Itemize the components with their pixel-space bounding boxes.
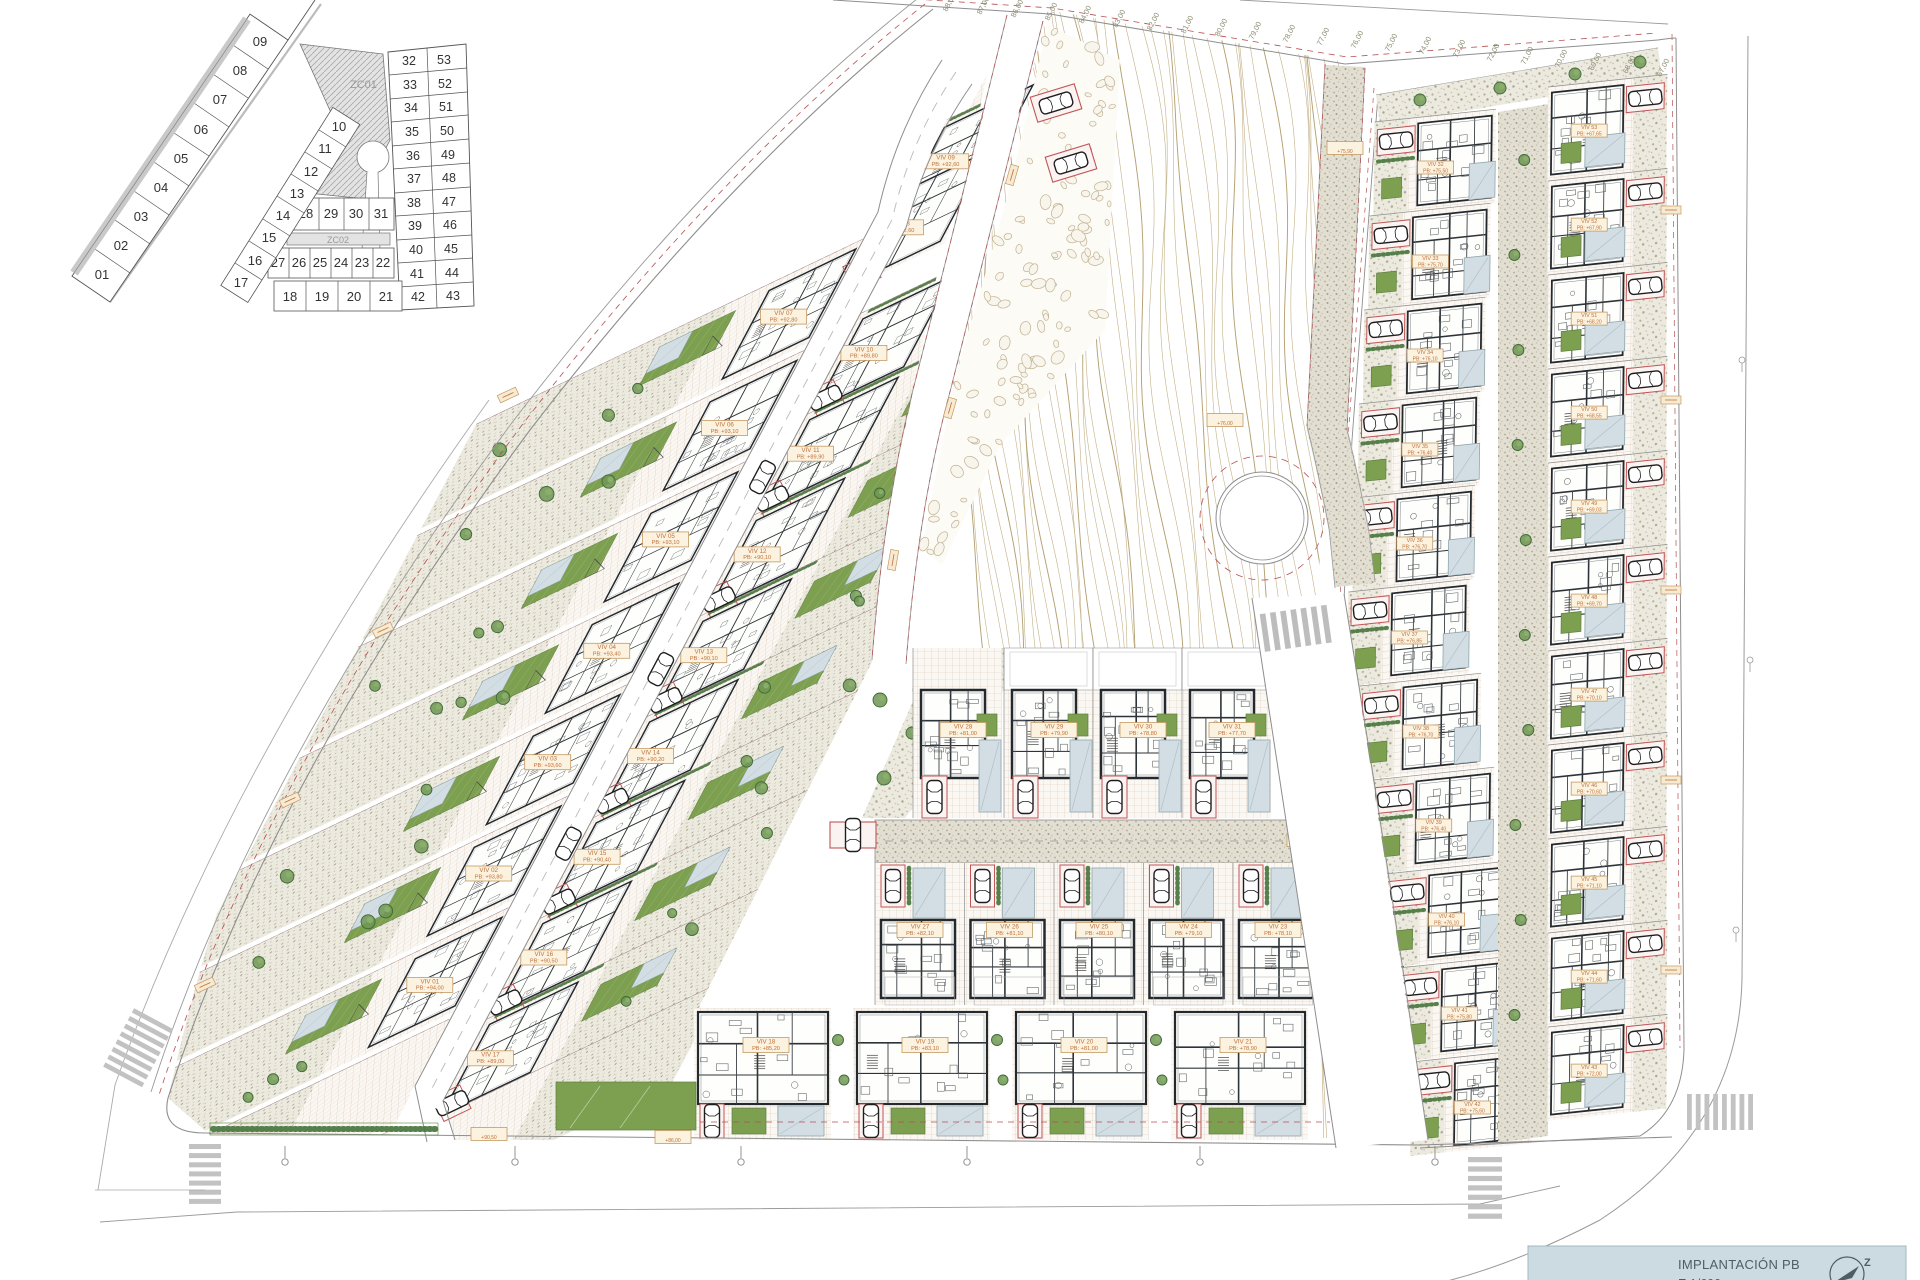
svg-text:PB: +72,00: PB: +72,00: [1577, 1071, 1602, 1077]
svg-text:02: 02: [114, 238, 128, 253]
svg-text:VIV 35: VIV 35: [1412, 444, 1428, 450]
svg-text:Z: Z: [1864, 1257, 1871, 1269]
svg-text:26: 26: [292, 255, 306, 270]
svg-text:VIV 27: VIV 27: [911, 923, 930, 930]
svg-text:PB: +82,10: PB: +82,10: [906, 931, 934, 937]
svg-text:VIV 45: VIV 45: [1581, 877, 1597, 883]
svg-text:PB: +68,55: PB: +68,55: [1577, 413, 1602, 419]
svg-text:PB: +93,10: PB: +93,10: [711, 429, 739, 435]
svg-text:PB: +89,00: PB: +89,00: [476, 1059, 504, 1065]
svg-text:PB: +68,20: PB: +68,20: [1577, 319, 1602, 325]
svg-text:PB: +85,20: PB: +85,20: [752, 1046, 780, 1052]
svg-text:PB: +75,80: PB: +75,80: [1447, 1014, 1472, 1020]
svg-text:VIV 53: VIV 53: [1581, 125, 1597, 131]
svg-text:VIV 50: VIV 50: [1581, 407, 1597, 413]
svg-text:VIV 13: VIV 13: [695, 649, 714, 656]
svg-text:VIV 39: VIV 39: [1426, 820, 1442, 826]
svg-text:10: 10: [332, 119, 346, 134]
svg-text:49: 49: [441, 148, 455, 162]
svg-text:VIV 47: VIV 47: [1581, 689, 1597, 695]
svg-text:43: 43: [446, 289, 460, 303]
svg-text:PB: +80,10: PB: +80,10: [1085, 931, 1113, 937]
svg-text:PB: +81,10: PB: +81,10: [996, 931, 1024, 937]
svg-text:15: 15: [262, 230, 276, 245]
svg-text:VIV 42: VIV 42: [1464, 1102, 1480, 1108]
svg-text:+90,50: +90,50: [481, 1135, 497, 1141]
svg-text:21: 21: [379, 289, 393, 304]
svg-text:19: 19: [315, 289, 329, 304]
svg-text:VIV 18: VIV 18: [757, 1038, 776, 1045]
svg-text:PB: +93,10: PB: +93,10: [652, 540, 680, 546]
svg-text:PB: +69,03: PB: +69,03: [1577, 507, 1602, 513]
svg-text:VIV 19: VIV 19: [916, 1038, 935, 1045]
svg-text:50: 50: [440, 124, 454, 138]
svg-text:VIV 34: VIV 34: [1417, 350, 1433, 356]
svg-text:51: 51: [439, 100, 453, 114]
svg-text:PB: +92,60: PB: +92,60: [932, 162, 960, 168]
svg-text:34: 34: [404, 101, 418, 115]
svg-text:PB: +78,80: PB: +78,80: [1129, 731, 1157, 737]
svg-text:40: 40: [409, 243, 423, 257]
svg-text:PB: +93,40: PB: +93,40: [593, 652, 621, 658]
svg-text:PB: +77,70: PB: +77,70: [1218, 731, 1246, 737]
svg-text:13: 13: [290, 186, 304, 201]
svg-text:VIV 28: VIV 28: [954, 723, 973, 730]
svg-text:12: 12: [304, 164, 318, 179]
svg-text:05: 05: [174, 151, 188, 166]
svg-text:PB: +93,80: PB: +93,80: [475, 874, 503, 880]
svg-text:PB: +76,10: PB: +76,10: [1413, 356, 1438, 362]
svg-text:16: 16: [248, 253, 262, 268]
svg-text:32: 32: [402, 54, 416, 68]
svg-text:+75,90: +75,90: [1337, 149, 1353, 155]
svg-text:IMPLANTACIÓN PB: IMPLANTACIÓN PB: [1678, 1257, 1800, 1272]
svg-text:VIV 03: VIV 03: [538, 756, 557, 763]
svg-text:VIV 15: VIV 15: [588, 850, 607, 857]
svg-text:01: 01: [95, 267, 109, 282]
svg-text:04: 04: [154, 180, 168, 195]
svg-text:PB: +76,10: PB: +76,10: [1434, 920, 1459, 926]
svg-text:44: 44: [445, 266, 459, 280]
svg-text:22: 22: [376, 255, 390, 270]
svg-text:VIV 52: VIV 52: [1581, 219, 1597, 225]
svg-text:36: 36: [406, 149, 420, 163]
svg-text:39: 39: [408, 219, 422, 233]
svg-text:23: 23: [355, 255, 369, 270]
svg-text:VIV 51: VIV 51: [1581, 313, 1597, 319]
svg-text:VIV 14: VIV 14: [641, 749, 660, 756]
svg-text:PB: +67,65: PB: +67,65: [1577, 131, 1602, 137]
svg-text:PB: +90,40: PB: +90,40: [583, 858, 611, 864]
svg-text:VIV 29: VIV 29: [1045, 723, 1064, 730]
svg-text:VIV 38: VIV 38: [1413, 726, 1429, 732]
svg-text:VIV 25: VIV 25: [1090, 923, 1109, 930]
svg-text:PB: +78,90: PB: +78,90: [1229, 1046, 1257, 1052]
svg-text:VIV 43: VIV 43: [1581, 1065, 1597, 1071]
svg-text:PB: +69,70: PB: +69,70: [1577, 601, 1602, 607]
svg-text:PB: +78,10: PB: +78,10: [1264, 931, 1292, 937]
svg-text:PB: +76,70: PB: +76,70: [1402, 544, 1427, 550]
svg-text:ZC01: ZC01: [350, 79, 377, 91]
svg-text:20: 20: [347, 289, 361, 304]
svg-text:37: 37: [407, 172, 421, 186]
svg-text:25: 25: [313, 255, 327, 270]
svg-text:PB: +76,70: PB: +76,70: [1408, 732, 1433, 738]
svg-text:24: 24: [334, 255, 348, 270]
svg-text:PB: +81,00: PB: +81,00: [1070, 1046, 1098, 1052]
svg-text:42: 42: [411, 290, 425, 304]
svg-text:03: 03: [134, 209, 148, 224]
svg-text:PB: +75,60: PB: +75,60: [1460, 1108, 1485, 1114]
svg-text:VIV 30: VIV 30: [1134, 723, 1153, 730]
svg-text:PB: +79,10: PB: +79,10: [1175, 931, 1203, 937]
svg-text:PB: +89,80: PB: +89,80: [850, 354, 878, 360]
svg-text:VIV 49: VIV 49: [1581, 501, 1597, 507]
svg-text:PB: +70,60: PB: +70,60: [1577, 789, 1602, 795]
svg-text:VIV 26: VIV 26: [1000, 923, 1019, 930]
svg-text:09: 09: [253, 34, 267, 49]
svg-text:VIV 07: VIV 07: [774, 310, 793, 317]
svg-text:VIV 21: VIV 21: [1234, 1038, 1253, 1045]
svg-text:VIV 02: VIV 02: [479, 867, 498, 874]
svg-text:48: 48: [442, 171, 456, 185]
svg-text:35: 35: [405, 125, 419, 139]
svg-text:PB: +75,50: PB: +75,50: [1423, 168, 1448, 174]
svg-text:07: 07: [213, 92, 227, 107]
svg-text:38: 38: [407, 196, 421, 210]
svg-text:VIV 01: VIV 01: [421, 978, 440, 985]
svg-text:VIV 23: VIV 23: [1269, 923, 1288, 930]
svg-text:VIV 41: VIV 41: [1451, 1008, 1467, 1014]
svg-text:VIV 31: VIV 31: [1223, 723, 1242, 730]
svg-text:18: 18: [283, 289, 297, 304]
svg-text:52: 52: [438, 77, 452, 91]
svg-text:VIV 10: VIV 10: [855, 346, 874, 353]
svg-text:31: 31: [374, 206, 388, 221]
svg-text:PB: +79,90: PB: +79,90: [1040, 731, 1068, 737]
svg-text:PB: +71,60: PB: +71,60: [1577, 977, 1602, 983]
svg-text:VIV 11: VIV 11: [801, 447, 820, 454]
svg-text:VIV 05: VIV 05: [656, 533, 675, 540]
svg-text:VIV 36: VIV 36: [1407, 538, 1423, 544]
svg-text:VIV 46: VIV 46: [1581, 783, 1597, 789]
svg-text:PB: +75,70: PB: +75,70: [1418, 262, 1443, 268]
svg-text:VIV 48: VIV 48: [1581, 595, 1597, 601]
svg-text:VIV 32: VIV 32: [1428, 162, 1444, 168]
svg-text:VIV 24: VIV 24: [1179, 923, 1198, 930]
svg-text:PB: +93,60: PB: +93,60: [534, 763, 562, 769]
svg-text:PB: +89,90: PB: +89,90: [797, 455, 825, 461]
svg-text:PB: +70,10: PB: +70,10: [1577, 695, 1602, 701]
svg-text:45: 45: [444, 242, 458, 256]
svg-text:PB: +71,10: PB: +71,10: [1577, 883, 1602, 889]
svg-text:14: 14: [276, 208, 290, 223]
svg-text:VIV 04: VIV 04: [597, 644, 616, 651]
svg-text:PB: +92,80: PB: +92,80: [770, 317, 798, 323]
svg-text:VIV 12: VIV 12: [748, 548, 767, 555]
svg-text:PB: +67,90: PB: +67,90: [1577, 225, 1602, 231]
svg-text:+76,00: +76,00: [1217, 421, 1233, 427]
svg-text:VIV 16: VIV 16: [535, 951, 554, 958]
svg-text:53: 53: [437, 53, 451, 67]
svg-text:VIV 17: VIV 17: [481, 1052, 500, 1059]
svg-text:VIV 06: VIV 06: [715, 421, 734, 428]
svg-text:29: 29: [324, 206, 338, 221]
svg-text:PB: +90,10: PB: +90,10: [690, 656, 718, 662]
svg-text:VIV 20: VIV 20: [1075, 1038, 1094, 1045]
svg-text:46: 46: [443, 218, 457, 232]
svg-text:ZC02: ZC02: [327, 235, 349, 245]
svg-text:PB: +76,40: PB: +76,40: [1407, 450, 1432, 456]
svg-text:VIV 40: VIV 40: [1439, 914, 1455, 920]
svg-text:PB: +90,10: PB: +90,10: [743, 555, 771, 561]
svg-text:06: 06: [194, 122, 208, 137]
svg-text:PB: +90,50: PB: +90,50: [530, 958, 558, 964]
svg-text:PB: +83,10: PB: +83,10: [911, 1046, 939, 1052]
svg-text:47: 47: [442, 195, 456, 209]
svg-text:33: 33: [403, 78, 417, 92]
svg-text:08: 08: [233, 63, 247, 78]
svg-text:PB: +76,40: PB: +76,40: [1421, 826, 1446, 832]
svg-text:VIV 33: VIV 33: [1422, 256, 1438, 262]
svg-text:41: 41: [410, 267, 424, 281]
svg-text:PB: +81,00: PB: +81,00: [949, 731, 977, 737]
svg-text:VIV 44: VIV 44: [1581, 971, 1597, 977]
svg-text:30: 30: [349, 206, 363, 221]
svg-text:17: 17: [234, 275, 248, 290]
svg-text:+86,00: +86,00: [665, 1138, 681, 1144]
svg-text:VIV 37: VIV 37: [1401, 632, 1417, 638]
svg-text:PB: +94,00: PB: +94,00: [416, 986, 444, 992]
svg-text:PB: +76,85: PB: +76,85: [1397, 638, 1422, 644]
svg-text:11: 11: [318, 141, 332, 156]
svg-text:PB: +90,20: PB: +90,20: [637, 757, 665, 763]
svg-text:VIV 09: VIV 09: [936, 155, 955, 162]
